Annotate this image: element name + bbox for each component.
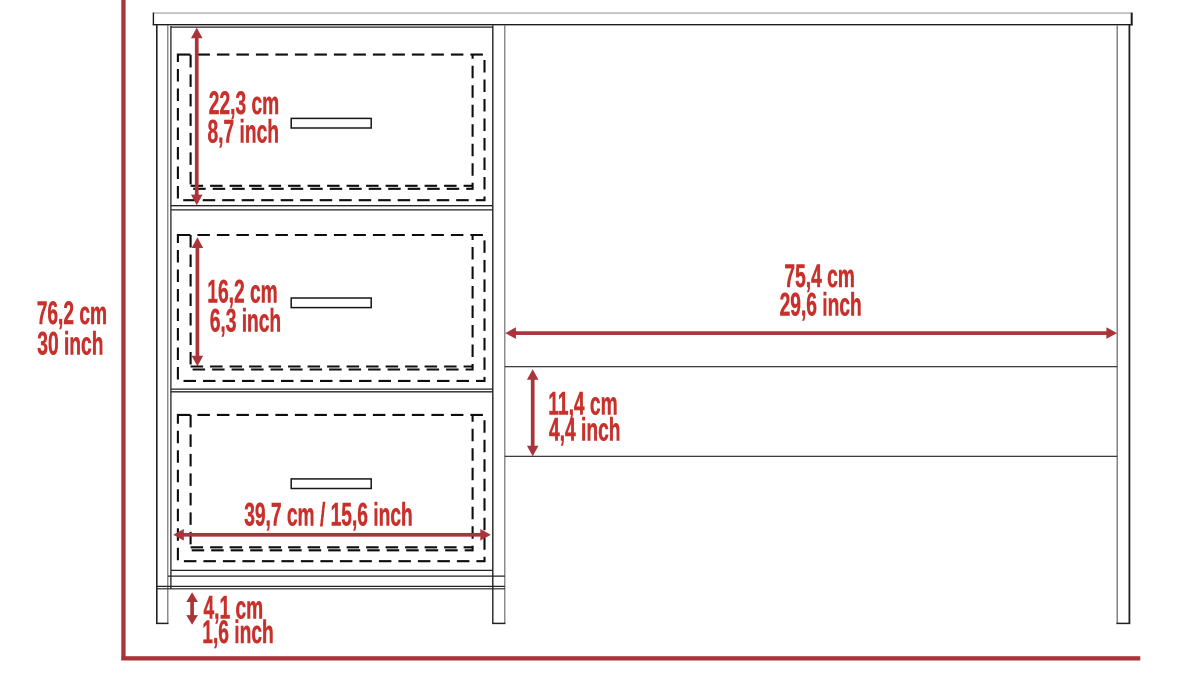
svg-text:29,6 inch: 29,6 inch (780, 286, 862, 322)
svg-text:6,3 inch: 6,3 inch (210, 302, 281, 338)
svg-text:1,6 inch: 1,6 inch (202, 614, 273, 650)
svg-text:8,7 inch: 8,7 inch (208, 114, 279, 150)
svg-text:4,4 inch: 4,4 inch (549, 411, 620, 447)
svg-text:39,7 cm / 15,6 inch: 39,7 cm / 15,6 inch (244, 496, 413, 532)
svg-text:30 inch: 30 inch (37, 325, 103, 361)
